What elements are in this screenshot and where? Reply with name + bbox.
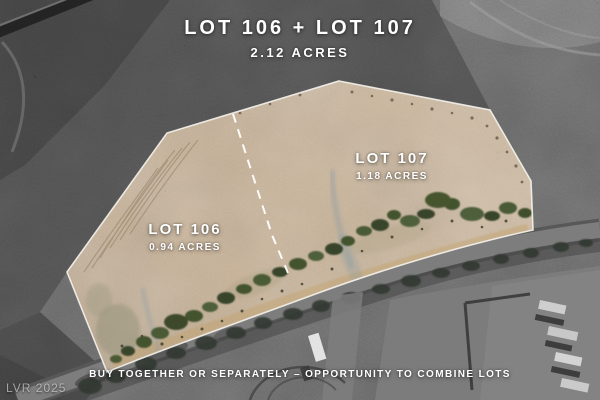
aerial-map bbox=[0, 0, 600, 400]
lot-107-name: LOT 107 bbox=[317, 150, 467, 167]
graded-pad-light bbox=[480, 270, 600, 400]
listing-acreage: 2.12 ACRES bbox=[0, 45, 600, 60]
sage-patch-2 bbox=[86, 283, 112, 317]
lot-107-acreage: 1.18 ACRES bbox=[317, 171, 467, 182]
footer-tagline: BUY TOGETHER OR SEPARATELY – OPPORTUNITY… bbox=[0, 369, 600, 380]
lot-106-name: LOT 106 bbox=[110, 221, 260, 238]
listing-header: LOT 106 + LOT 107 2.12 ACRES bbox=[0, 17, 600, 60]
lot-106-label: LOT 106 0.94 ACRES bbox=[110, 221, 260, 253]
watermark-lvr: LVR 2025 bbox=[6, 381, 66, 395]
lot-107-label: LOT 107 1.18 ACRES bbox=[317, 150, 467, 182]
aerial-listing-image: LOT 106 + LOT 107 2.12 ACRES LOT 107 1.1… bbox=[0, 0, 600, 400]
listing-title: LOT 106 + LOT 107 bbox=[0, 17, 600, 40]
lot-106-acreage: 0.94 ACRES bbox=[110, 242, 260, 253]
